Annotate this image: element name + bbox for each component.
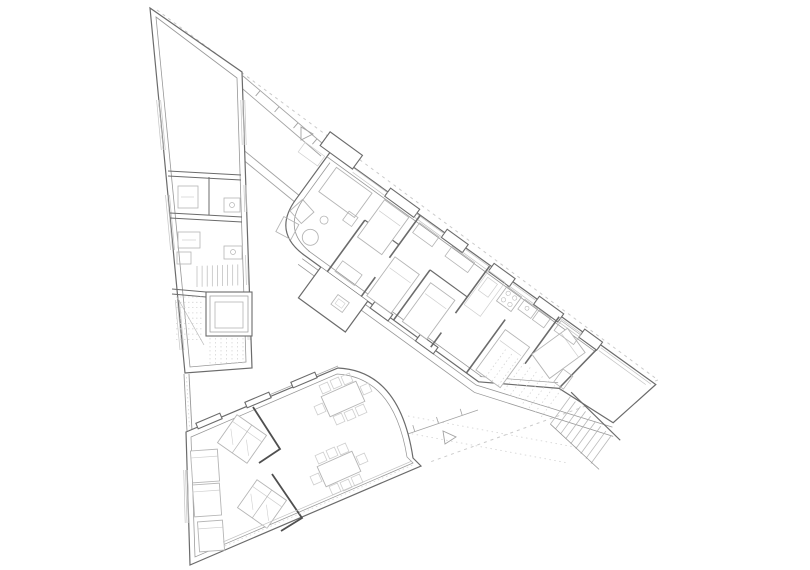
- window-lines: [245, 100, 246, 145]
- tread-line: [591, 436, 611, 464]
- tread-line: [437, 417, 439, 424]
- floor-plan-svg: [0, 0, 810, 570]
- path-dotted-edge: [408, 416, 580, 448]
- bed: [190, 449, 219, 483]
- south-walk-ticks: [413, 409, 462, 432]
- court-walk-edge: [241, 148, 301, 197]
- tread-line: [571, 416, 591, 444]
- garden-wall: [189, 374, 192, 431]
- path-dotted-edge: [397, 431, 568, 463]
- entry-ramp-edge: [237, 84, 321, 156]
- bed: [192, 483, 221, 517]
- window-lines: [186, 470, 188, 523]
- entry-ramp-edge: [243, 76, 329, 149]
- tread-line: [534, 385, 555, 414]
- tread-line: [294, 123, 299, 128]
- tread-line: [561, 406, 581, 434]
- entrance-marker-triangle: [443, 431, 456, 444]
- tread-line: [413, 425, 415, 432]
- garden-wall: [184, 374, 187, 431]
- floorplan-sheet: [0, 0, 810, 570]
- elevator-shaft: [206, 292, 252, 336]
- bed: [197, 520, 224, 552]
- tread-line: [312, 139, 317, 144]
- window-lines: [184, 470, 186, 523]
- tread-line: [586, 431, 606, 459]
- garden-wall-dotted: [187, 377, 190, 428]
- tread-line: [275, 107, 280, 112]
- tread-line: [256, 91, 261, 96]
- tread-line: [460, 409, 462, 416]
- tread-line: [581, 426, 601, 454]
- tread-line: [555, 402, 575, 430]
